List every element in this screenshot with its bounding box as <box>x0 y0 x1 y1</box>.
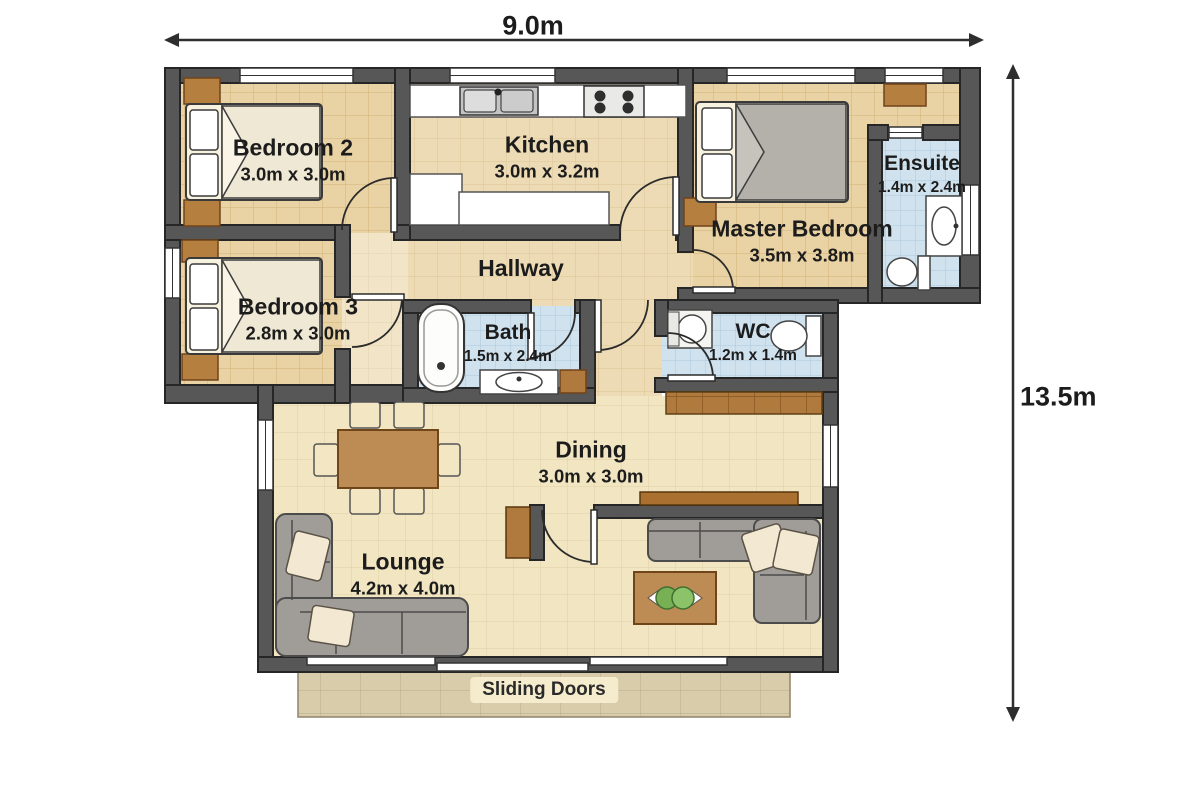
chair-icon <box>394 488 424 514</box>
corridor-highlight <box>342 233 408 393</box>
cabinet-icon <box>506 507 530 558</box>
window <box>885 68 943 83</box>
wall <box>335 349 350 403</box>
height-dimension-arrow <box>1006 64 1020 722</box>
sliding-doors-label: Sliding Doors <box>470 677 618 703</box>
stove-icon <box>584 86 644 117</box>
wall <box>655 300 668 336</box>
nightstand-icon <box>184 78 220 104</box>
window <box>727 68 855 83</box>
width-dimension-arrow <box>164 33 984 47</box>
dresser-icon <box>884 84 926 106</box>
chair-icon <box>394 402 424 428</box>
sideboard-icon <box>640 492 798 505</box>
window <box>450 68 555 83</box>
kitchen-counter <box>459 192 609 225</box>
nightstand-icon <box>182 354 218 380</box>
kitchen-counter <box>410 174 462 225</box>
bed-icon <box>696 102 848 202</box>
vanity-sink-icon <box>926 196 962 256</box>
wall <box>165 225 342 240</box>
window <box>258 420 273 490</box>
wall <box>165 385 410 403</box>
chair-icon <box>350 402 380 428</box>
sink-icon <box>460 87 538 115</box>
nightstand-icon <box>184 200 220 226</box>
chair-icon <box>314 444 338 476</box>
pillow-icon <box>307 605 354 647</box>
counter-icon <box>666 392 822 414</box>
wall <box>868 125 882 303</box>
bathtub-icon <box>418 304 464 392</box>
wall <box>594 505 823 518</box>
chair-icon <box>438 444 460 476</box>
cabinet-icon <box>560 370 586 393</box>
width-dimension-label: 9.0m <box>502 11 564 42</box>
dining-table-icon <box>338 430 438 488</box>
wall <box>335 225 350 297</box>
bed-icon <box>186 258 322 354</box>
window <box>823 425 838 487</box>
height-dimension-label: 13.5m <box>1020 382 1097 413</box>
basin-icon <box>668 310 712 348</box>
vanity-sink-icon <box>480 370 558 394</box>
window <box>240 68 353 83</box>
floor-plan: Bedroom 2 3.0m x 3.0m Kitchen 3.0m x 3.2… <box>0 0 1200 800</box>
chair-icon <box>350 488 380 514</box>
window <box>165 248 180 298</box>
wall <box>923 125 960 140</box>
wall <box>868 125 888 140</box>
ensuite-door <box>889 127 922 138</box>
coffee-table-icon <box>634 572 716 624</box>
window <box>962 185 979 255</box>
bed-icon <box>186 104 322 200</box>
wall <box>410 225 620 240</box>
pillow-icon <box>772 528 819 575</box>
